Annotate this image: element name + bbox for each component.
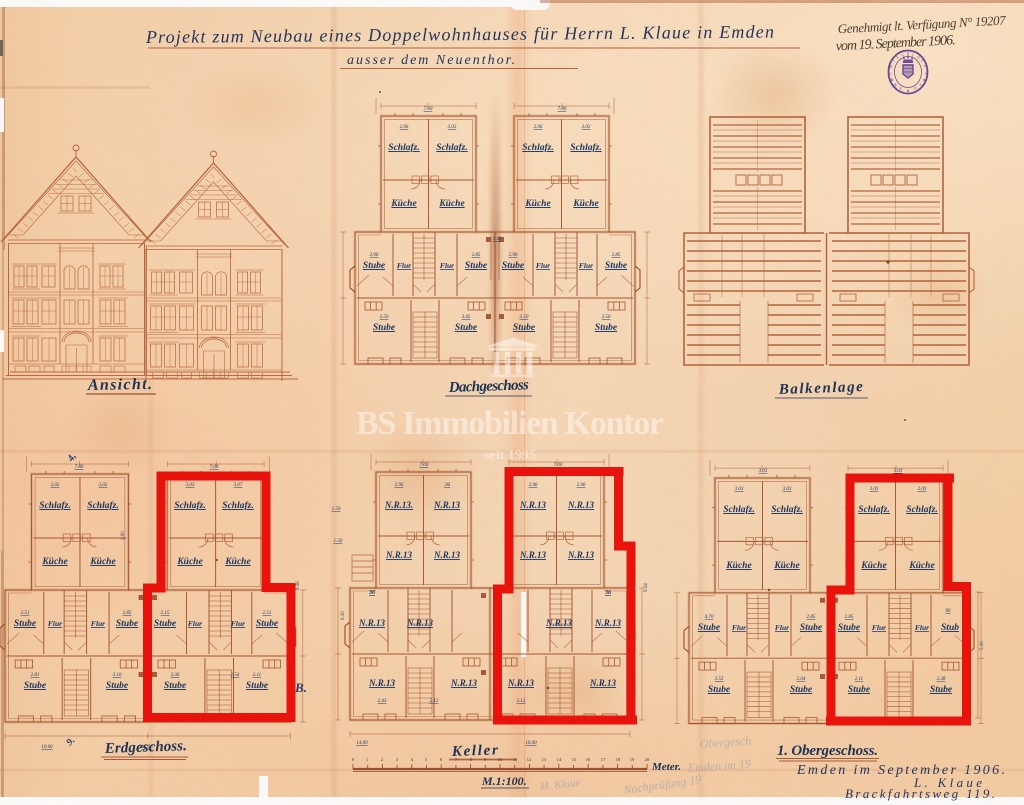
svg-text:2.04: 2.04: [797, 677, 806, 682]
svg-text:17: 17: [601, 757, 606, 762]
svg-text:13: 13: [542, 757, 547, 762]
svg-text:2.96: 2.96: [529, 483, 538, 488]
svg-text:Küche: Küche: [572, 199, 599, 209]
svg-text:Stube: Stube: [24, 681, 47, 691]
svg-text:Stube: Stube: [465, 261, 488, 271]
svg-text:N.R.13: N.R.13: [594, 618, 622, 628]
svg-text:5.30: 5.30: [980, 641, 985, 650]
svg-text:14.00: 14.00: [356, 741, 368, 746]
svg-text:Stube: Stube: [605, 261, 628, 271]
svg-text:2.81: 2.81: [31, 673, 40, 678]
svg-text:2.51: 2.51: [263, 611, 272, 616]
svg-text:3.02: 3.02: [448, 125, 457, 130]
svg-text:18: 18: [616, 757, 621, 762]
svg-text:7.00: 7.00: [420, 463, 429, 468]
svg-text:Schlafz.: Schlafz.: [222, 501, 253, 511]
svg-text:Schlafz.: Schlafz.: [436, 143, 467, 153]
svg-text:3.03: 3.03: [186, 483, 195, 488]
svg-text:N.R.13: N.R.13: [406, 618, 434, 628]
svg-text:10.00: 10.00: [41, 745, 53, 750]
svg-text:Flur: Flur: [440, 261, 454, 270]
svg-text:2.85: 2.85: [807, 615, 816, 620]
svg-text:20: 20: [645, 757, 650, 762]
svg-text:36: 36: [368, 590, 375, 596]
svg-text:9.34: 9.34: [644, 583, 649, 592]
svg-text:N.R.13: N.R.13: [507, 678, 535, 688]
svg-text:2.96: 2.96: [534, 125, 543, 130]
svg-text:Stube: Stube: [106, 681, 129, 691]
svg-text:3.38: 3.38: [937, 677, 946, 682]
svg-text:Flur: Flur: [48, 619, 62, 628]
svg-text:Schlafz.: Schlafz.: [723, 505, 754, 515]
svg-text:Küche: Küche: [860, 561, 887, 571]
svg-text:15: 15: [572, 757, 577, 762]
svg-text:2.90: 2.90: [370, 253, 379, 258]
svg-text:Schlafz.: Schlafz.: [858, 505, 889, 515]
svg-text:3.03: 3.03: [894, 469, 903, 474]
svg-text:Küche: Küche: [224, 557, 251, 567]
svg-text:Schlafz.: Schlafz.: [570, 143, 601, 153]
svg-text:12: 12: [527, 757, 532, 762]
svg-text:19: 19: [630, 757, 635, 762]
svg-text:Stub: Stub: [941, 623, 959, 633]
svg-text:Schlafz.: Schlafz.: [388, 143, 419, 153]
svg-text:N.R.13: N.R.13: [567, 550, 595, 560]
svg-text:N.R.13: N.R.13: [567, 500, 595, 510]
svg-text:Flur: Flur: [579, 261, 593, 270]
svg-text:Dachgeschoss: Dachgeschoss: [448, 377, 530, 396]
svg-text:Stube: Stube: [116, 619, 139, 629]
svg-text:N.R.13: N.R.13: [368, 678, 396, 688]
svg-text:Flur: Flur: [536, 261, 550, 270]
svg-text:10: 10: [498, 757, 503, 762]
svg-text:N.R.13.: N.R.13.: [384, 500, 413, 510]
svg-text:3.03: 3.03: [783, 487, 792, 492]
svg-text:3.10: 3.10: [113, 673, 122, 678]
svg-text:2: 2: [381, 757, 383, 762]
svg-text:Flur: Flur: [915, 623, 929, 632]
svg-text:S: S: [924, 72, 928, 74]
svg-text:N.R.13: N.R.13: [589, 678, 617, 688]
svg-text:2.96: 2.96: [577, 483, 586, 488]
svg-text:N.R.13: N.R.13: [433, 550, 461, 560]
svg-text:Schlafz.: Schlafz.: [174, 501, 205, 511]
svg-text:Stube: Stube: [455, 323, 478, 333]
svg-text:2.03: 2.03: [918, 487, 927, 492]
svg-text:Stube: Stube: [256, 619, 279, 629]
svg-text:3.02: 3.02: [582, 125, 591, 130]
svg-text:2.51: 2.51: [21, 611, 30, 616]
svg-text:Flur: Flur: [397, 261, 411, 270]
svg-text:3.50: 3.50: [380, 315, 389, 320]
svg-text:2.96: 2.96: [395, 483, 404, 488]
svg-text:Stube: Stube: [363, 261, 386, 271]
svg-text:10.00: 10.00: [525, 741, 537, 746]
svg-text:3.50: 3.50: [602, 315, 611, 320]
svg-text:Ansicht.: Ansicht.: [87, 376, 152, 394]
svg-text:2.12: 2.12: [517, 699, 526, 704]
svg-text:2.12: 2.12: [430, 699, 439, 704]
svg-text:4.70: 4.70: [705, 615, 714, 620]
svg-text:2.11: 2.11: [253, 673, 261, 678]
svg-text:7.00: 7.00: [424, 107, 433, 112]
svg-text:16: 16: [586, 757, 591, 762]
svg-text:1.50: 1.50: [334, 539, 343, 544]
svg-text:7.00: 7.00: [210, 465, 219, 470]
svg-text:Flur: Flur: [872, 623, 886, 632]
svg-text:Küche: Küche: [89, 557, 116, 567]
svg-text:1: 1: [366, 757, 368, 762]
svg-text:Flur: Flur: [775, 623, 789, 632]
svg-text:Flur: Flur: [91, 619, 105, 628]
svg-text:2.96: 2.96: [400, 125, 409, 130]
svg-text:2.43: 2.43: [378, 699, 387, 704]
svg-text:8.36: 8.36: [296, 581, 301, 590]
svg-text:1.44: 1.44: [493, 237, 502, 242]
svg-text:B.: B.: [294, 680, 307, 695]
svg-text:14: 14: [557, 757, 562, 762]
svg-text:N.R.13: N.R.13: [385, 550, 413, 560]
svg-text:N.R.13: N.R.13: [433, 500, 461, 510]
svg-text:Stube: Stube: [708, 685, 731, 695]
svg-text:3.07: 3.07: [234, 483, 243, 488]
svg-text:1.50: 1.50: [332, 507, 341, 512]
svg-text:Stube: Stube: [502, 261, 525, 271]
svg-text:Schlafz.: Schlafz.: [906, 505, 937, 515]
svg-text:BS Immobilien Kontor: BS Immobilien Kontor: [356, 405, 664, 442]
svg-text:2.85: 2.85: [845, 615, 854, 620]
svg-text:Küche: Küche: [176, 557, 203, 567]
svg-text:Balkenlage: Balkenlage: [778, 379, 864, 398]
svg-text:3.50: 3.50: [520, 315, 529, 320]
svg-text:3.02: 3.02: [99, 483, 108, 488]
svg-text:N.R.13: N.R.13: [545, 618, 573, 628]
svg-text:Schlafz.: Schlafz.: [87, 501, 118, 511]
svg-text:2.54: 2.54: [231, 673, 240, 678]
svg-text:2.15: 2.15: [161, 611, 170, 616]
svg-text:Stube: Stube: [790, 685, 813, 695]
svg-text:11: 11: [513, 757, 517, 762]
svg-text:Stube: Stube: [154, 619, 177, 629]
svg-text:Küche: Küche: [773, 561, 800, 571]
svg-text:Stube: Stube: [838, 623, 861, 633]
svg-text:Stube: Stube: [930, 685, 953, 695]
svg-text:2.00: 2.00: [121, 531, 126, 540]
svg-text:Küche: Küche: [908, 561, 935, 571]
svg-text:N.R.13: N.R.13: [519, 550, 547, 560]
svg-text:Stube: Stube: [595, 323, 618, 333]
svg-text:3.45: 3.45: [462, 315, 471, 320]
svg-text:N.R.13: N.R.13: [519, 500, 547, 510]
svg-text:36: 36: [604, 590, 611, 596]
svg-text:Flur: Flur: [188, 619, 202, 628]
svg-text:2.85: 2.85: [123, 611, 132, 616]
svg-text:Küche: Küche: [524, 199, 551, 209]
svg-text:Meter.: Meter.: [651, 761, 681, 773]
svg-text:Stube: Stube: [513, 323, 536, 333]
svg-text:Stube: Stube: [14, 619, 37, 629]
svg-text:7.00: 7.00: [75, 465, 84, 470]
svg-text:seit 1995: seit 1995: [484, 448, 536, 463]
svg-text:3.03: 3.03: [735, 487, 744, 492]
svg-text:Flur: Flur: [231, 619, 245, 628]
svg-text:Stube: Stube: [373, 323, 396, 333]
svg-text:Erdgeschoss.: Erdgeschoss.: [104, 738, 188, 757]
svg-text:N.R.13: N.R.13: [450, 678, 478, 688]
svg-text:Küche: Küche: [390, 199, 417, 209]
svg-text:Flur: Flur: [732, 623, 746, 632]
svg-text:Stube: Stube: [800, 623, 823, 633]
svg-text:Stube: Stube: [246, 681, 269, 691]
svg-text:Stube: Stube: [698, 623, 721, 633]
svg-text:1. Obergeschoss.: 1. Obergeschoss.: [777, 743, 878, 759]
svg-text:Küche: Küche: [41, 557, 68, 567]
svg-text:2.90: 2.90: [509, 253, 518, 258]
svg-text:3.53: 3.53: [715, 677, 724, 682]
svg-text:2.02: 2.02: [51, 483, 60, 488]
svg-text:2.85: 2.85: [472, 253, 481, 258]
svg-text:Stube: Stube: [164, 681, 187, 691]
svg-text:ausser dem Neuenthor.: ausser dem Neuenthor.: [347, 53, 515, 68]
svg-text:.96: .96: [444, 483, 451, 488]
svg-text:Schlafz.: Schlafz.: [522, 143, 553, 153]
svg-text:Emden im September 1906.: Emden im September 1906.: [796, 763, 1005, 778]
svg-text:M.1:100.: M.1:100.: [481, 774, 527, 788]
svg-text:Küche: Küche: [725, 561, 752, 571]
svg-text:9.30: 9.30: [341, 611, 346, 620]
svg-text:2.85: 2.85: [612, 253, 621, 258]
svg-text:Küche: Küche: [438, 199, 465, 209]
svg-text:3.03: 3.03: [759, 469, 768, 474]
svg-text:3.36: 3.36: [171, 673, 180, 678]
svg-text:7.00: 7.00: [558, 107, 567, 112]
svg-text:Schlafz.: Schlafz.: [771, 505, 802, 515]
svg-text:Stube: Stube: [848, 685, 871, 695]
svg-text:N.R.13: N.R.13: [358, 618, 386, 628]
svg-text:Schlafz.: Schlafz.: [39, 501, 70, 511]
svg-text:3.03: 3.03: [870, 487, 879, 492]
svg-text:2.11: 2.11: [855, 677, 863, 682]
svg-text:90: 90: [946, 609, 952, 614]
